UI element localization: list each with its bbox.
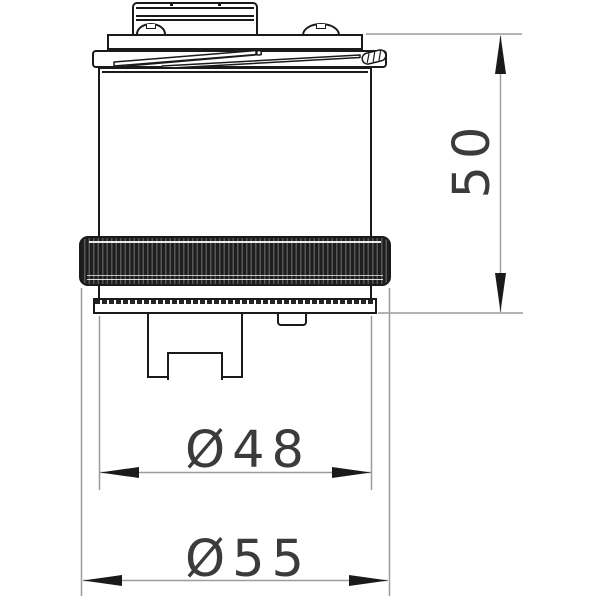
arrow-down-icon [495,273,506,312]
knurled-ring [79,236,391,286]
screw-slot-notch [146,24,156,29]
stem-tick-mark [170,2,173,6]
knurl-highlight [87,275,383,277]
knurl-highlight [89,241,381,243]
cartridge-body [98,67,372,240]
knurl-highlight [87,279,383,281]
dimension-label-height: 50 [446,89,500,229]
screw-slot-notch [316,24,326,29]
stem-groove-line [136,15,254,17]
stem-tick-mark [218,2,221,6]
dimension-label-diameter-55: Ø55 [128,534,368,585]
base-flange [93,298,377,314]
lid-plate [107,34,363,50]
arrow-left-icon [83,575,122,586]
arrow-up-icon [495,35,506,74]
retaining-ring-band [92,50,387,68]
stem-groove-line [136,19,254,21]
technical-drawing-canvas: 50 Ø48 Ø55 [0,0,600,600]
stem-edge-line [136,7,254,9]
alignment-tab-small [277,314,307,326]
body-top-edge-line [102,71,368,73]
dimension-label-diameter-48: Ø48 [128,425,368,476]
seal-serration [95,300,375,304]
alignment-tab-notch [167,352,223,380]
